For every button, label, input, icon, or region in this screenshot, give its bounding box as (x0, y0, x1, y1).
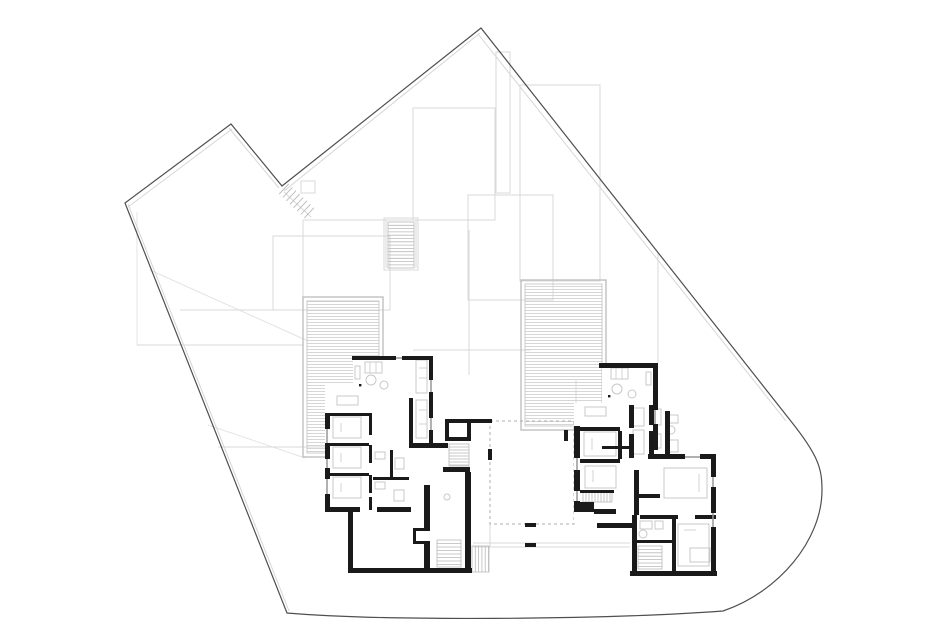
floor-plan-canvas (0, 0, 940, 635)
floor-plan-page (0, 0, 940, 635)
